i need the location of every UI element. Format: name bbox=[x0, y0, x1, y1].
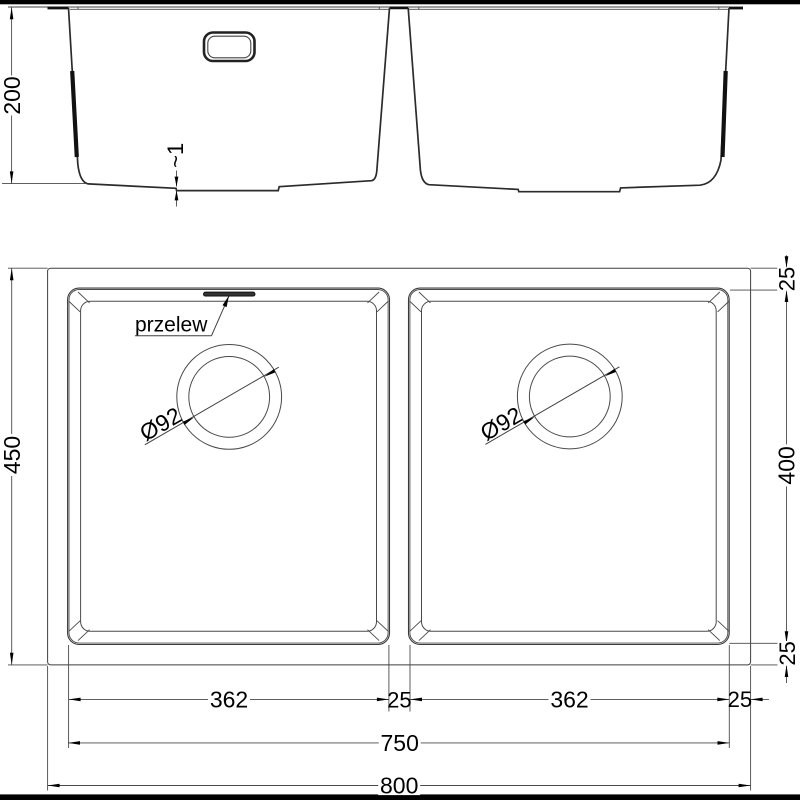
svg-text:~1: ~1 bbox=[163, 143, 188, 168]
svg-text:450: 450 bbox=[0, 436, 25, 474]
svg-text:25: 25 bbox=[387, 687, 411, 712]
svg-text:362: 362 bbox=[210, 687, 248, 713]
svg-text:przelew: przelew bbox=[135, 314, 208, 337]
svg-text:200: 200 bbox=[0, 76, 25, 114]
svg-text:400: 400 bbox=[773, 446, 799, 484]
svg-text:25: 25 bbox=[774, 267, 799, 291]
svg-text:800: 800 bbox=[380, 773, 418, 799]
svg-text:750: 750 bbox=[381, 730, 419, 756]
svg-text:25: 25 bbox=[728, 687, 752, 712]
svg-text:25: 25 bbox=[775, 641, 800, 665]
svg-text:362: 362 bbox=[550, 687, 588, 713]
